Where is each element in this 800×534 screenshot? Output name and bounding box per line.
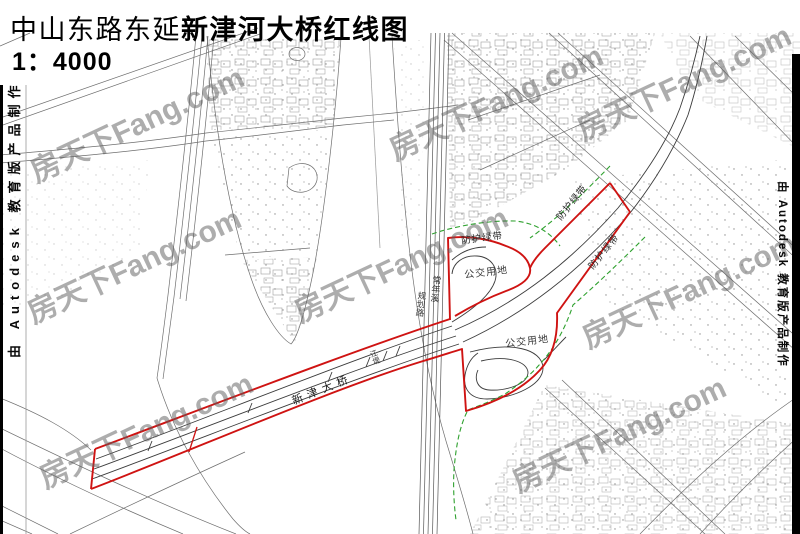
map-scale: 1：4000: [12, 42, 113, 78]
map-title-emphasis: 新津河大桥红线图: [181, 15, 409, 45]
left-border-bar: [0, 85, 3, 534]
map-title-prefix: 中山东路东延: [10, 15, 181, 45]
redline-map-canvas: 房天下Fang.com房天下Fang.com房天下Fang.com房天下Fang…: [0, 0, 800, 534]
map-linework: [0, 0, 800, 534]
autodesk-plotstamp-right: 由 Autodesk 教育版产品制作: [775, 181, 791, 368]
right-border-bar: [792, 54, 800, 534]
autodesk-plotstamp-left: 由 Autodesk 教育版产品制作: [4, 80, 23, 358]
